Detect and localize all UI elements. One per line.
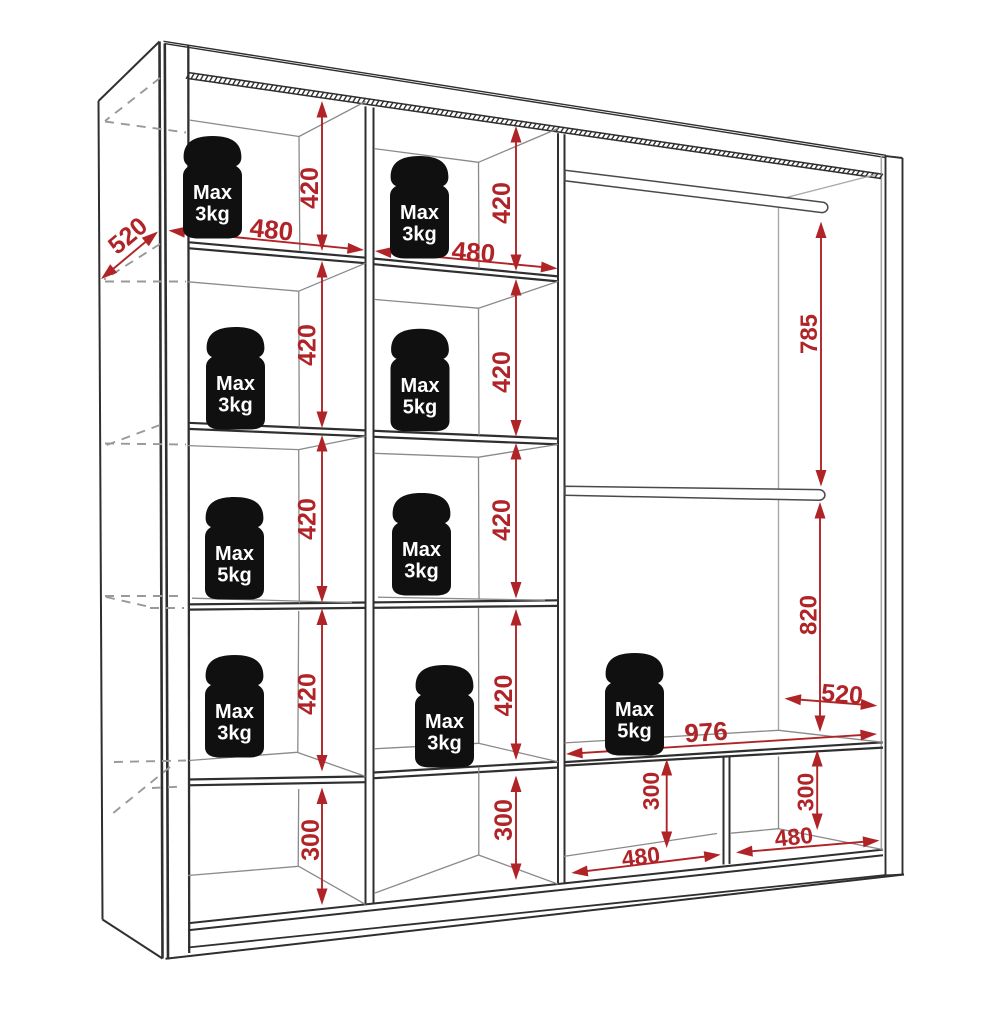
svg-text:420: 420 xyxy=(294,498,322,540)
svg-text:420: 420 xyxy=(294,673,322,715)
svg-text:480: 480 xyxy=(773,822,814,852)
svg-text:Max: Max xyxy=(193,182,232,204)
svg-text:420: 420 xyxy=(488,182,516,224)
svg-text:300: 300 xyxy=(490,799,518,841)
svg-text:976: 976 xyxy=(683,716,728,749)
svg-text:420: 420 xyxy=(490,675,518,717)
svg-text:Max: Max xyxy=(615,699,654,721)
svg-text:3kg: 3kg xyxy=(195,204,229,226)
svg-text:480: 480 xyxy=(620,841,661,871)
svg-text:3kg: 3kg xyxy=(427,733,461,755)
svg-text:300: 300 xyxy=(297,819,325,861)
svg-text:420: 420 xyxy=(294,324,322,366)
svg-text:Max: Max xyxy=(401,375,440,397)
svg-text:Max: Max xyxy=(425,711,464,733)
svg-text:300: 300 xyxy=(793,773,819,811)
svg-text:3kg: 3kg xyxy=(402,224,436,246)
svg-text:3kg: 3kg xyxy=(218,395,252,417)
svg-text:Max: Max xyxy=(215,543,254,565)
svg-text:820: 820 xyxy=(796,595,823,635)
svg-text:480: 480 xyxy=(451,235,497,268)
svg-text:5kg: 5kg xyxy=(403,396,437,418)
svg-text:480: 480 xyxy=(248,212,294,246)
svg-text:3kg: 3kg xyxy=(404,561,438,583)
svg-text:Max: Max xyxy=(216,373,255,395)
svg-text:420: 420 xyxy=(488,499,516,541)
svg-text:Max: Max xyxy=(400,202,439,224)
svg-text:520: 520 xyxy=(820,679,864,710)
svg-text:Max: Max xyxy=(402,539,441,561)
svg-text:785: 785 xyxy=(796,314,823,354)
svg-text:420: 420 xyxy=(296,167,324,209)
svg-text:Max: Max xyxy=(215,701,254,723)
svg-text:420: 420 xyxy=(488,351,516,393)
svg-text:3kg: 3kg xyxy=(217,723,251,745)
svg-text:5kg: 5kg xyxy=(617,721,651,743)
svg-text:300: 300 xyxy=(638,772,664,810)
svg-text:5kg: 5kg xyxy=(217,565,251,587)
